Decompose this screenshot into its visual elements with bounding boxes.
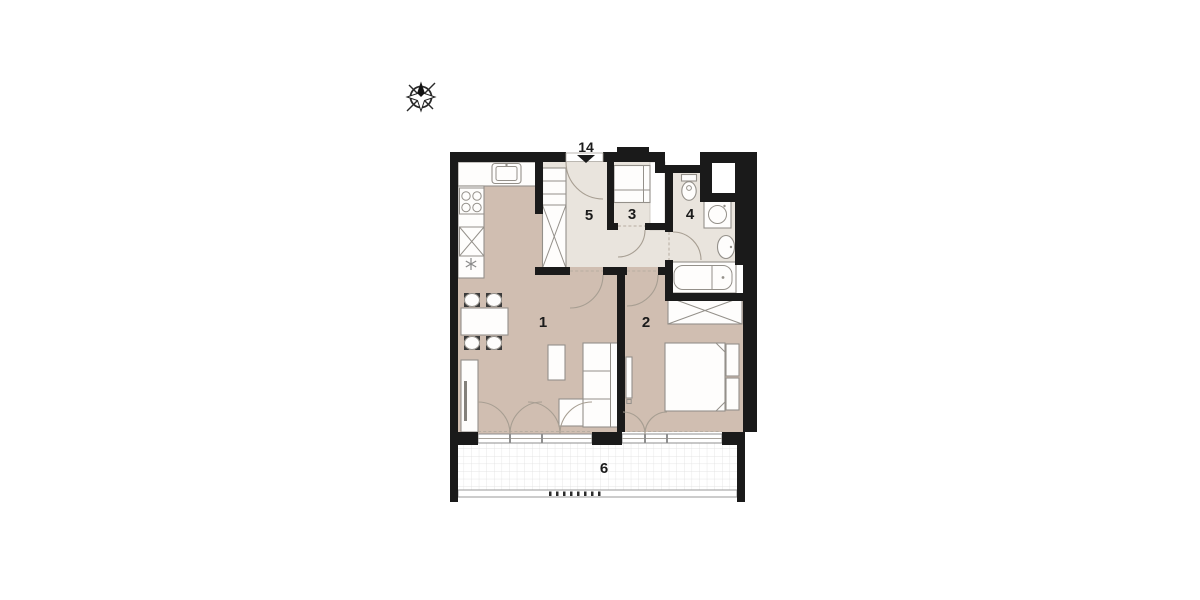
wall-segment — [735, 196, 757, 265]
washing-machine-icon — [704, 201, 731, 228]
wall-segment — [665, 293, 745, 301]
wall-segment — [535, 152, 543, 214]
bathtub-icon — [670, 262, 736, 293]
chair-icon — [486, 293, 502, 307]
wall-segment — [607, 223, 618, 230]
chair-icon — [464, 336, 480, 350]
wall-segment — [450, 445, 458, 502]
toilet-icon — [682, 175, 697, 201]
wall-segment — [450, 152, 566, 162]
wall-segment — [737, 445, 745, 502]
wall-segment — [592, 432, 622, 445]
pillow — [726, 378, 739, 410]
room-label-5: 5 — [585, 207, 593, 224]
wall-segment — [743, 260, 757, 432]
mirror-icon — [626, 357, 632, 404]
wall-segment — [450, 432, 478, 445]
coffee-table — [548, 345, 565, 380]
railing-ticks — [549, 492, 601, 497]
compass-rose-icon — [407, 83, 435, 111]
room-label-1: 1 — [539, 314, 547, 331]
room-label-6: 6 — [600, 460, 608, 477]
wall-segment — [665, 165, 673, 232]
shaft-niche — [712, 163, 735, 193]
wall-segment — [535, 267, 570, 275]
railing — [458, 490, 737, 497]
wall-segment — [617, 267, 625, 432]
chair-icon — [486, 336, 502, 350]
room-label-4: 4 — [686, 206, 695, 223]
wall-segment — [450, 152, 458, 432]
dining-table — [461, 308, 508, 335]
floor-plan-canvas: 1 2 3 4 5 6 14 — [0, 0, 1200, 600]
chair-icon — [464, 293, 480, 307]
sideboard-tv-icon — [461, 360, 478, 432]
wall-segment — [617, 147, 649, 153]
room3-closet-icon — [614, 166, 650, 203]
wall-segment — [607, 152, 614, 230]
balcony-tiles — [458, 443, 737, 490]
entrance-label: 14 — [578, 139, 594, 155]
balcony — [458, 443, 737, 497]
room-label-3: 3 — [628, 206, 636, 223]
wall-segment — [658, 267, 672, 275]
hall-wardrobe-icon — [543, 168, 567, 268]
wardrobe-icon — [668, 297, 742, 324]
sink-icon — [492, 164, 521, 184]
pillow — [726, 344, 739, 376]
room-label-2: 2 — [642, 314, 650, 331]
wall-segment — [722, 432, 745, 445]
floor-plan-page: 1 2 3 4 5 6 14 — [0, 0, 1200, 600]
washbasin-icon — [718, 236, 735, 259]
